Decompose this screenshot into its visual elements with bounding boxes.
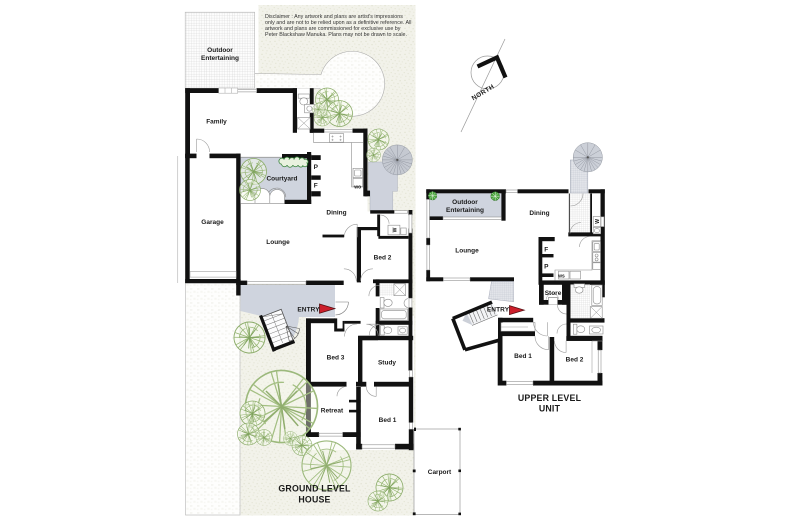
svg-text:Entertaining: Entertaining bbox=[446, 207, 484, 214]
svg-text:Bed 1: Bed 1 bbox=[379, 417, 397, 424]
svg-text:F: F bbox=[544, 246, 548, 253]
svg-text:Entertaining: Entertaining bbox=[201, 55, 239, 62]
svg-text:ENTRY: ENTRY bbox=[297, 306, 320, 313]
svg-text:F: F bbox=[314, 183, 318, 190]
svg-text:W: W bbox=[595, 219, 601, 224]
svg-text:HOUSE: HOUSE bbox=[298, 495, 330, 505]
svg-text:Bed 3: Bed 3 bbox=[327, 355, 345, 362]
svg-text:Study: Study bbox=[378, 360, 396, 367]
svg-text:Garage: Garage bbox=[201, 219, 224, 226]
svg-text:Bed 2: Bed 2 bbox=[374, 255, 392, 262]
svg-text:Store: Store bbox=[545, 290, 562, 297]
svg-text:UNIT: UNIT bbox=[539, 404, 561, 414]
svg-text:Lounge: Lounge bbox=[266, 239, 290, 246]
svg-text:Retreat: Retreat bbox=[321, 408, 344, 415]
svg-text:UPPER LEVEL: UPPER LEVEL bbox=[518, 393, 582, 403]
svg-text:Outdoor: Outdoor bbox=[207, 47, 233, 54]
svg-text:P: P bbox=[544, 263, 549, 270]
svg-text:Carport: Carport bbox=[428, 469, 452, 476]
svg-text:ENTRY: ENTRY bbox=[487, 307, 510, 314]
svg-text:Outdoor: Outdoor bbox=[452, 199, 478, 206]
svg-text:W: W bbox=[392, 227, 398, 232]
svg-text:GROUND LEVEL: GROUND LEVEL bbox=[278, 484, 351, 494]
svg-text:Peter Blackshaw Manuka. Plans: Peter Blackshaw Manuka. Plans may not be… bbox=[265, 32, 407, 38]
svg-text:P: P bbox=[314, 164, 319, 171]
svg-text:ws: ws bbox=[557, 273, 565, 279]
svg-text:Courtyard: Courtyard bbox=[266, 176, 297, 183]
svg-text:Dining: Dining bbox=[529, 210, 549, 217]
svg-text:Lounge: Lounge bbox=[455, 248, 479, 255]
svg-text:Bed 2: Bed 2 bbox=[566, 357, 584, 364]
svg-text:wo: wo bbox=[353, 184, 361, 190]
svg-text:Family: Family bbox=[206, 119, 227, 126]
svg-text:Bed 1: Bed 1 bbox=[514, 353, 532, 360]
svg-text:Dining: Dining bbox=[326, 210, 346, 217]
